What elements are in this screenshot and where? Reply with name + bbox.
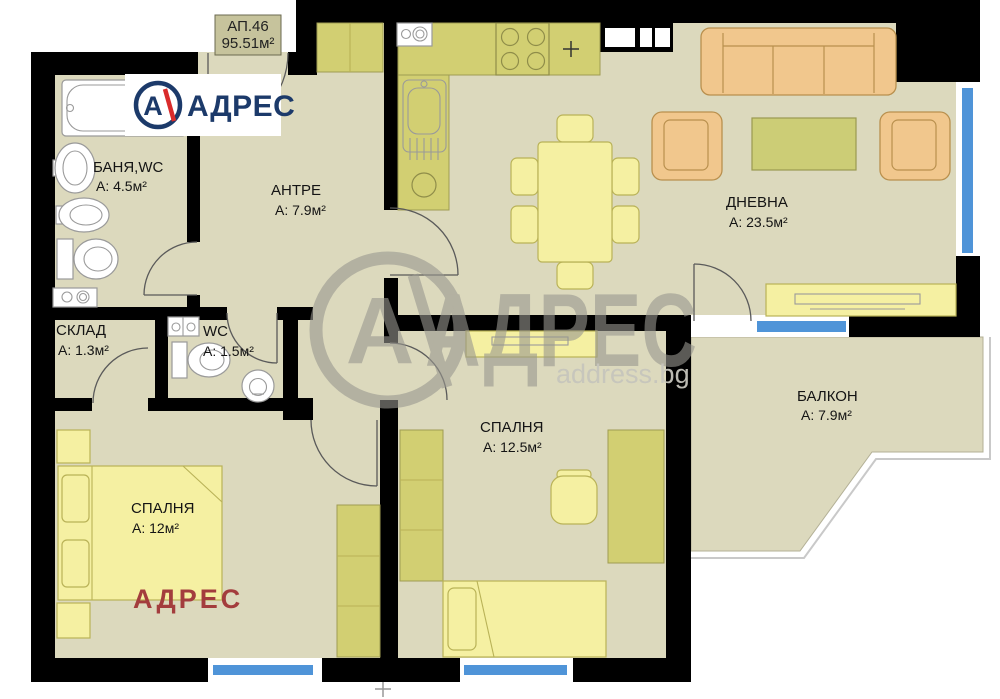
dining-chair — [511, 158, 538, 195]
nightstand — [57, 603, 90, 638]
svg-text:СПАЛНЯ: СПАЛНЯ — [131, 500, 194, 517]
svg-text:СКЛАД: СКЛАД — [56, 322, 106, 339]
bedroom-2-wardrobe — [400, 430, 443, 581]
bedroom-2-window — [460, 658, 573, 682]
bathroom-toilet — [57, 239, 118, 279]
agency-logo: А АДРЕС — [125, 74, 295, 136]
svg-text:АНТРЕ: АНТРЕ — [271, 182, 321, 199]
sofa — [701, 28, 896, 95]
dining-chair — [612, 206, 639, 243]
bedroom-2-bed — [443, 581, 606, 657]
coffee-table — [752, 118, 856, 170]
agency-stamp: АДРЕС — [133, 584, 243, 614]
svg-text:А: 7.9м²: А: 7.9м² — [275, 202, 326, 218]
watermark-domain: address.bg — [556, 359, 690, 389]
bedroom-2-desk — [608, 430, 664, 563]
living-room-window — [956, 85, 980, 256]
bedroom-2-chair — [551, 470, 597, 524]
dining-table — [538, 142, 612, 262]
floor-plan: А АДРЕС address.bg БАНЯ,WC А: 4.5м² АНТР… — [0, 0, 1000, 699]
tv-cabinet — [766, 284, 956, 316]
logo-letter: А — [143, 91, 163, 121]
svg-text:А: 4.5м²: А: 4.5м² — [96, 178, 147, 194]
armchair-right — [880, 112, 950, 180]
dining-chair — [612, 158, 639, 195]
armchair-left — [652, 112, 722, 180]
kitchen-window — [600, 23, 673, 52]
svg-text:А: 1.3м²: А: 1.3м² — [58, 342, 109, 358]
wc-basin-unit — [168, 317, 199, 336]
svg-text:WC: WC — [203, 323, 228, 340]
unit-number: АП.46 — [227, 18, 268, 35]
svg-text:А: 12м²: А: 12м² — [132, 520, 179, 536]
unit-area: 95.51м² — [222, 35, 275, 52]
washing-machine — [53, 288, 97, 307]
svg-text:БАНЯ,WC: БАНЯ,WC — [93, 159, 164, 176]
svg-text:БАЛКОН: БАЛКОН — [797, 388, 858, 405]
kitchen-appliance — [397, 23, 432, 46]
svg-text:ДНЕВНА: ДНЕВНА — [726, 194, 788, 211]
bedroom-1-window — [208, 658, 322, 682]
hallway-closet — [317, 23, 383, 72]
svg-text:А: 7.9м²: А: 7.9м² — [801, 407, 852, 423]
svg-text:А: 12.5м²: А: 12.5м² — [483, 439, 542, 455]
nightstand — [57, 430, 90, 463]
watermark-letter: А — [346, 278, 415, 384]
svg-text:СПАЛНЯ: СПАЛНЯ — [480, 419, 543, 436]
unit-label: АП.46 95.51м² — [215, 15, 281, 55]
bedroom-1-wardrobe — [337, 505, 380, 657]
dining-chair — [511, 206, 538, 243]
balcony-door-window — [691, 316, 849, 337]
wc-corner-sink — [242, 370, 274, 402]
svg-text:А: 23.5м²: А: 23.5м² — [729, 214, 788, 230]
dining-chair — [557, 115, 593, 142]
logo-text: АДРЕС — [187, 90, 295, 123]
svg-text:А: 1.5м²: А: 1.5м² — [203, 343, 254, 359]
